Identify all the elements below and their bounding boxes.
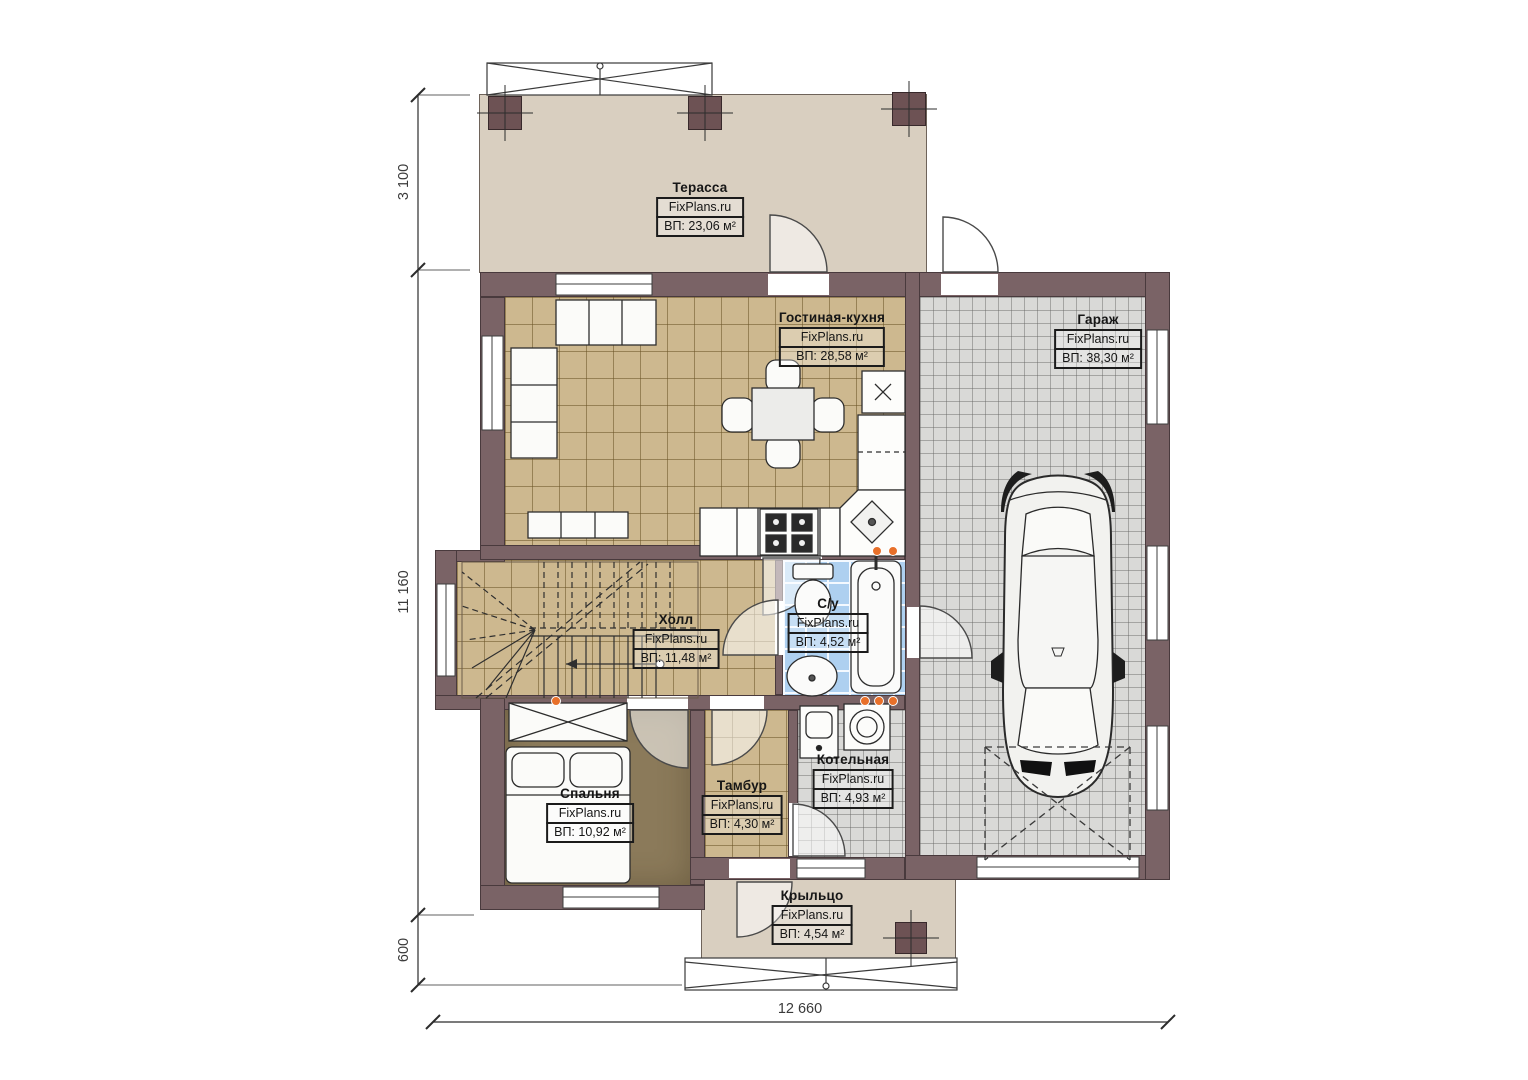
door-hall-tambur: [712, 710, 767, 765]
room-label-boiler: Котельная FixPlans.ru ВП: 4,93 м²: [813, 752, 894, 809]
room-label-living-kitchen: Гостиная-кухня FixPlans.ru ВП: 28,58 м²: [779, 310, 885, 367]
dining-table: [722, 360, 844, 468]
room-area-tambur: ВП: 4,30 м²: [702, 814, 783, 835]
watermark-fixplans: FixPlans.ru: [772, 905, 853, 926]
room-name-boiler: Котельная: [813, 752, 894, 767]
car-top-view: [991, 471, 1125, 797]
wardrobe-icon: [509, 703, 627, 741]
room-area-bathroom: ВП: 4,52 м²: [788, 632, 869, 653]
door-garage-back: [943, 217, 998, 272]
boiler-fixtures: [800, 704, 890, 758]
room-name-terrace: Терасса: [656, 180, 744, 195]
dimension-left-bottom: 600: [396, 938, 412, 962]
dimension-bottom: 12 660: [778, 1001, 822, 1017]
room-area-living-kitchen: ВП: 28,58 м²: [779, 346, 885, 367]
room-name-bathroom: С/у: [788, 596, 869, 611]
tv-stand: [528, 512, 628, 538]
watermark-fixplans: FixPlans.ru: [702, 795, 783, 816]
sink-icon: [787, 656, 837, 696]
room-name-tambur: Тамбур: [702, 778, 783, 793]
watermark-fixplans: FixPlans.ru: [788, 613, 869, 634]
dimension-left-middle: 11 160: [396, 570, 412, 613]
dimension-left-top: 3 100: [396, 164, 412, 200]
door-boiler: [793, 804, 845, 856]
room-name-bedroom: Спальня: [546, 786, 634, 801]
boiler-unit-icon: [844, 704, 890, 750]
room-label-bathroom: С/у FixPlans.ru ВП: 4,52 м²: [788, 596, 869, 653]
room-name-hall: Холл: [633, 612, 720, 627]
watermark-fixplans: FixPlans.ru: [779, 327, 885, 348]
room-label-terrace: Терасса FixPlans.ru ВП: 23,06 м²: [656, 180, 744, 237]
door-bathroom: [723, 600, 778, 655]
room-name-living-kitchen: Гостиная-кухня: [779, 310, 885, 325]
porch-steps-icon: [685, 958, 957, 990]
terrace-steps-icon: [487, 63, 712, 95]
room-area-bedroom: ВП: 10,92 м²: [546, 822, 634, 843]
stove-icon: [760, 509, 818, 555]
room-area-terrace: ВП: 23,06 м²: [656, 216, 744, 237]
watermark-fixplans: FixPlans.ru: [813, 769, 894, 790]
room-label-garage: Гараж FixPlans.ru ВП: 38,30 м²: [1054, 312, 1142, 369]
watermark-fixplans: FixPlans.ru: [656, 197, 744, 218]
room-label-tambur: Тамбур FixPlans.ru ВП: 4,30 м²: [702, 778, 783, 835]
plan-linework: [0, 0, 1528, 1080]
sofa: [511, 300, 656, 458]
door-bedroom: [630, 710, 688, 768]
door-garage-side: [920, 606, 972, 658]
watermark-fixplans: FixPlans.ru: [633, 629, 720, 650]
watermark-fixplans: FixPlans.ru: [1054, 329, 1142, 350]
room-area-garage: ВП: 38,30 м²: [1054, 348, 1142, 369]
door-kitchen-terrace: [770, 215, 827, 272]
room-area-hall: ВП: 11,48 м²: [633, 648, 720, 669]
room-label-porch: Крыльцо FixPlans.ru ВП: 4,54 м²: [772, 888, 853, 945]
room-name-porch: Крыльцо: [772, 888, 853, 903]
room-name-garage: Гараж: [1054, 312, 1142, 327]
floor-plan-canvas: Терасса FixPlans.ru ВП: 23,06 м² Гостина…: [0, 0, 1528, 1080]
room-area-boiler: ВП: 4,93 м²: [813, 788, 894, 809]
room-label-hall: Холл FixPlans.ru ВП: 11,48 м²: [633, 612, 720, 669]
room-area-porch: ВП: 4,54 м²: [772, 924, 853, 945]
room-label-bedroom: Спальня FixPlans.ru ВП: 10,92 м²: [546, 786, 634, 843]
watermark-fixplans: FixPlans.ru: [546, 803, 634, 824]
